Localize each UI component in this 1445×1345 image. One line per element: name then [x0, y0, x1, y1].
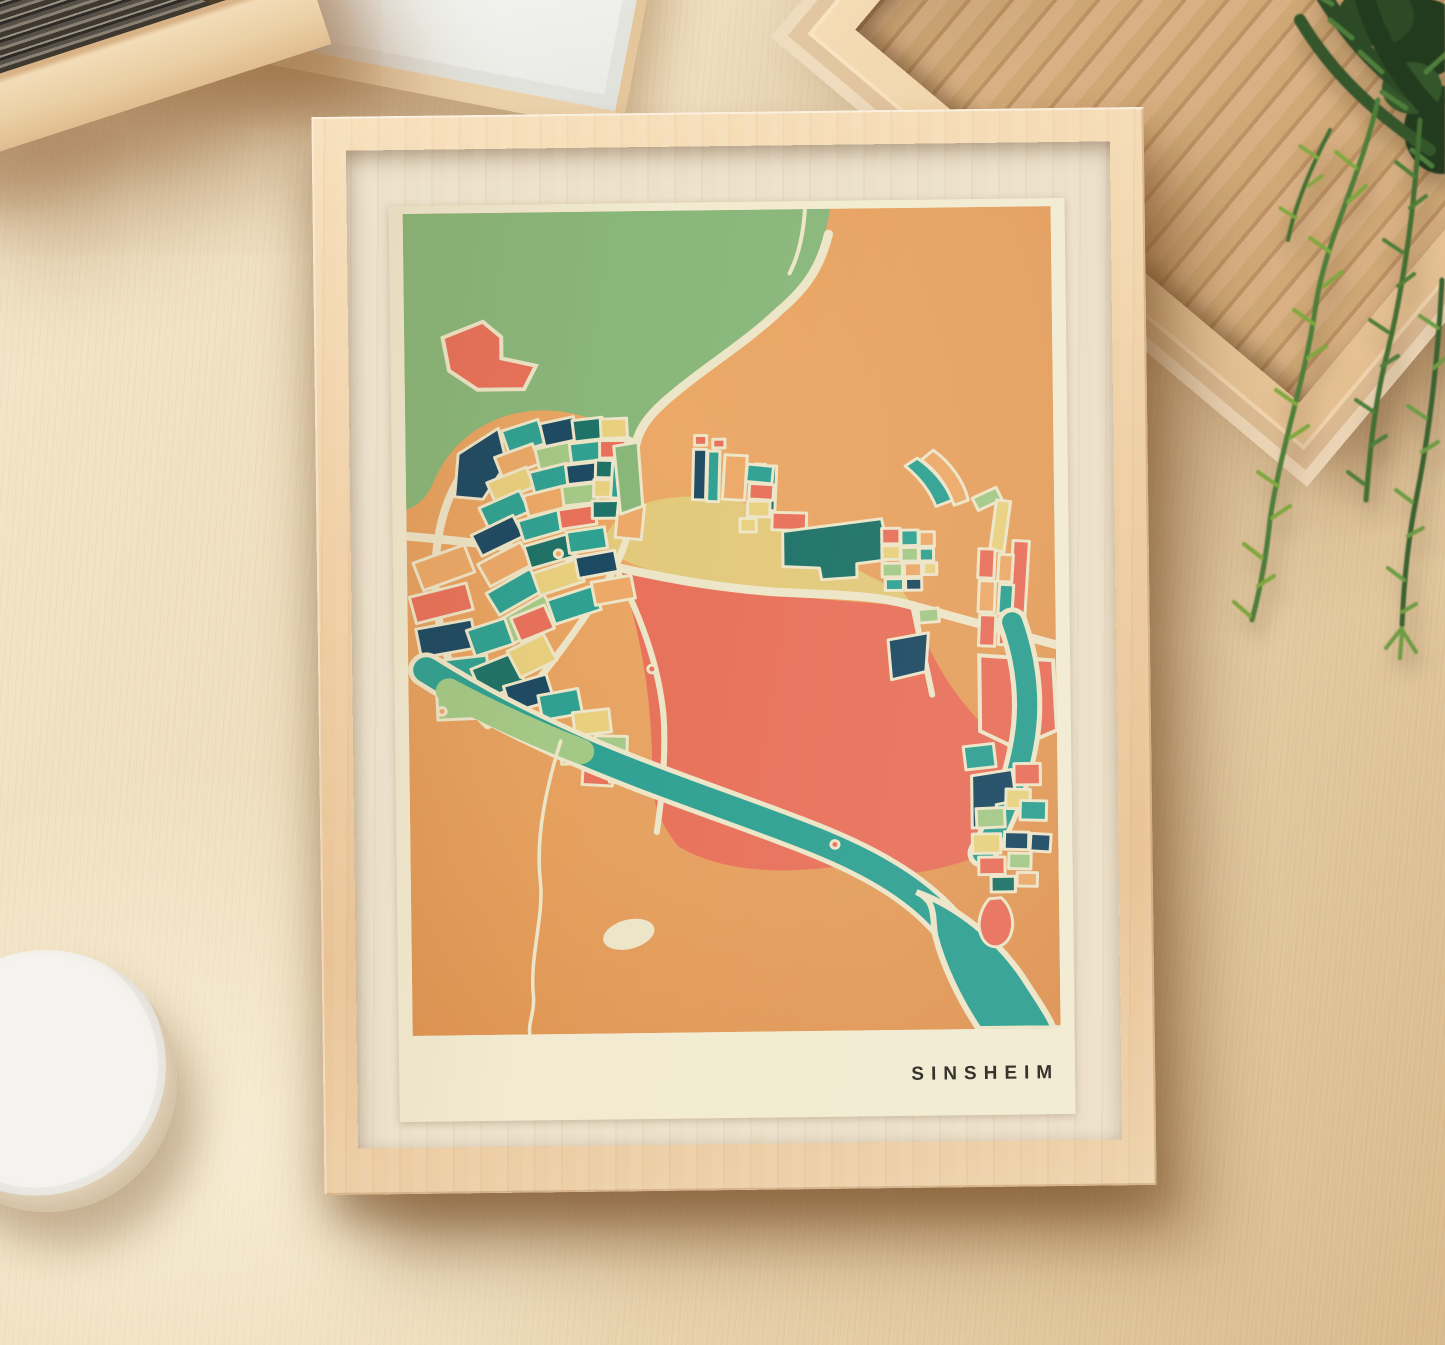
poster-frame: SINSHEIM [311, 107, 1156, 1195]
map-poster: SINSHEIM [389, 198, 1076, 1122]
city-map-graphic [403, 206, 1061, 1036]
striped-art-frame [0, 0, 331, 177]
map-art [403, 206, 1061, 1036]
desk-scene: SINSHEIM [0, 0, 1445, 1345]
hanging-plant [1120, 0, 1445, 700]
frame-mat: SINSHEIM [346, 141, 1122, 1148]
poster-title: SINSHEIM [911, 1062, 1059, 1086]
